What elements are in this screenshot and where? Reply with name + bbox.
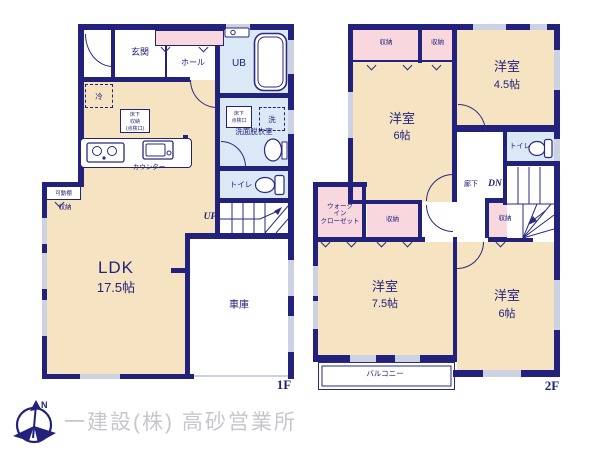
fridge-label: 冷	[95, 91, 103, 102]
wall-segment	[185, 233, 190, 379]
window-marker	[42, 253, 47, 289]
room-ne-size-label: 4.5帖	[477, 79, 537, 92]
wall-segment	[313, 355, 457, 362]
ldk-size-label: 17.5帖	[78, 281, 154, 296]
balcony-label: バルコニー	[343, 370, 427, 379]
compass-north-label: N	[41, 400, 48, 410]
movable-shelf-box: 可動棚	[46, 186, 81, 200]
window-marker	[530, 24, 547, 30]
wall-segment	[215, 93, 294, 98]
floor2-label: 2F	[538, 379, 566, 394]
wall-segment	[313, 182, 367, 187]
wall-segment	[185, 233, 294, 239]
window-marker	[42, 218, 47, 244]
room-sw-door-arc	[426, 205, 453, 232]
window-marker	[42, 300, 47, 336]
room-sw-size-label: 7.5帖	[353, 298, 417, 311]
window-marker	[348, 92, 353, 138]
wall-segment	[78, 77, 190, 82]
entrance-label: 玄関	[115, 47, 165, 57]
compass-icon: N	[8, 396, 60, 448]
stairs-up-label: UP	[199, 212, 221, 223]
underfloor-storage-box: 床下 収納 (点検口)	[120, 109, 150, 133]
closet-nw-wide-label: 収納	[353, 39, 419, 46]
underfloor-inspection-box: 床下 点検口	[226, 106, 252, 128]
window-marker	[350, 355, 376, 362]
room-nw-size-label: 6帖	[372, 130, 432, 143]
stove-icon	[86, 142, 125, 163]
wall-segment	[418, 203, 422, 237]
company-name: 一建設(株) 高砂営業所	[64, 406, 297, 436]
entrance-door-arc	[85, 34, 113, 67]
corridor-label: 廊下	[459, 181, 483, 189]
garage-label: 車庫	[218, 300, 260, 312]
window-marker	[288, 260, 294, 296]
movable-shelf-label: 可動棚	[55, 189, 72, 197]
window-marker	[554, 50, 560, 90]
window-marker	[313, 266, 318, 296]
closet-sw-label: 収納	[367, 216, 418, 223]
toilet-1f-label: トイレ	[226, 181, 256, 190]
window-marker	[483, 370, 521, 377]
underfloor-storage-label: 床下 収納 (点検口)	[126, 111, 144, 132]
window-marker	[473, 24, 506, 30]
hall-label: ホール	[168, 58, 218, 67]
window-marker	[288, 40, 294, 74]
counter-label: カウンター	[118, 164, 180, 171]
kitchen-sink-icon	[142, 140, 174, 160]
room-ne-name-label: 洋室	[477, 60, 537, 75]
window-marker	[80, 374, 120, 379]
garage-door-opening	[194, 375, 288, 377]
wall-segment	[418, 30, 422, 63]
window-marker	[288, 110, 294, 134]
window-marker	[395, 355, 420, 362]
walk-in-closet-label: ウォーク イン クローゼット	[316, 203, 364, 225]
washer-label: 洗	[268, 114, 276, 125]
fridge-box: 冷	[85, 84, 113, 108]
closet-stairs-label: 収納	[489, 215, 521, 222]
room-nw-name-label: 洋室	[372, 112, 432, 127]
underfloor-inspection-label: 床下 点検口	[231, 110, 246, 124]
stairs-1f	[220, 203, 288, 233]
storage-1f-label: 収納	[50, 204, 80, 211]
bathtub-icon	[253, 32, 288, 92]
room-se-name-label: 洋室	[477, 289, 537, 304]
window-marker	[288, 316, 294, 352]
toilet-2f-label: トイレ	[507, 143, 533, 151]
room-sw-name-label: 洋室	[355, 280, 415, 295]
ldk-name-label: LDK	[85, 258, 147, 278]
window-marker	[554, 139, 560, 161]
stairs-2f	[507, 167, 554, 238]
washbasin-icon	[263, 137, 288, 164]
stairs-down-label: DN	[485, 179, 505, 190]
room-se-size-label: 6帖	[477, 308, 537, 321]
washroom-label: 洗面脱衣室	[220, 128, 288, 137]
wall-segment	[503, 161, 560, 166]
wall-segment	[171, 268, 187, 273]
closet-nw-small-label: 収納	[422, 39, 453, 46]
bath-vanity-icon	[224, 27, 250, 38]
floorplan-page: 冷 床下 収納 (点検口) 床下 点検口 洗 可動棚 玄関 ホール UB 洗面脱…	[0, 0, 600, 450]
window-marker	[313, 301, 318, 329]
toilet-icon-1f	[254, 173, 287, 197]
floor1-label: 1F	[270, 378, 298, 393]
unit-bath-label: UB	[224, 58, 254, 70]
window-marker	[554, 280, 560, 330]
